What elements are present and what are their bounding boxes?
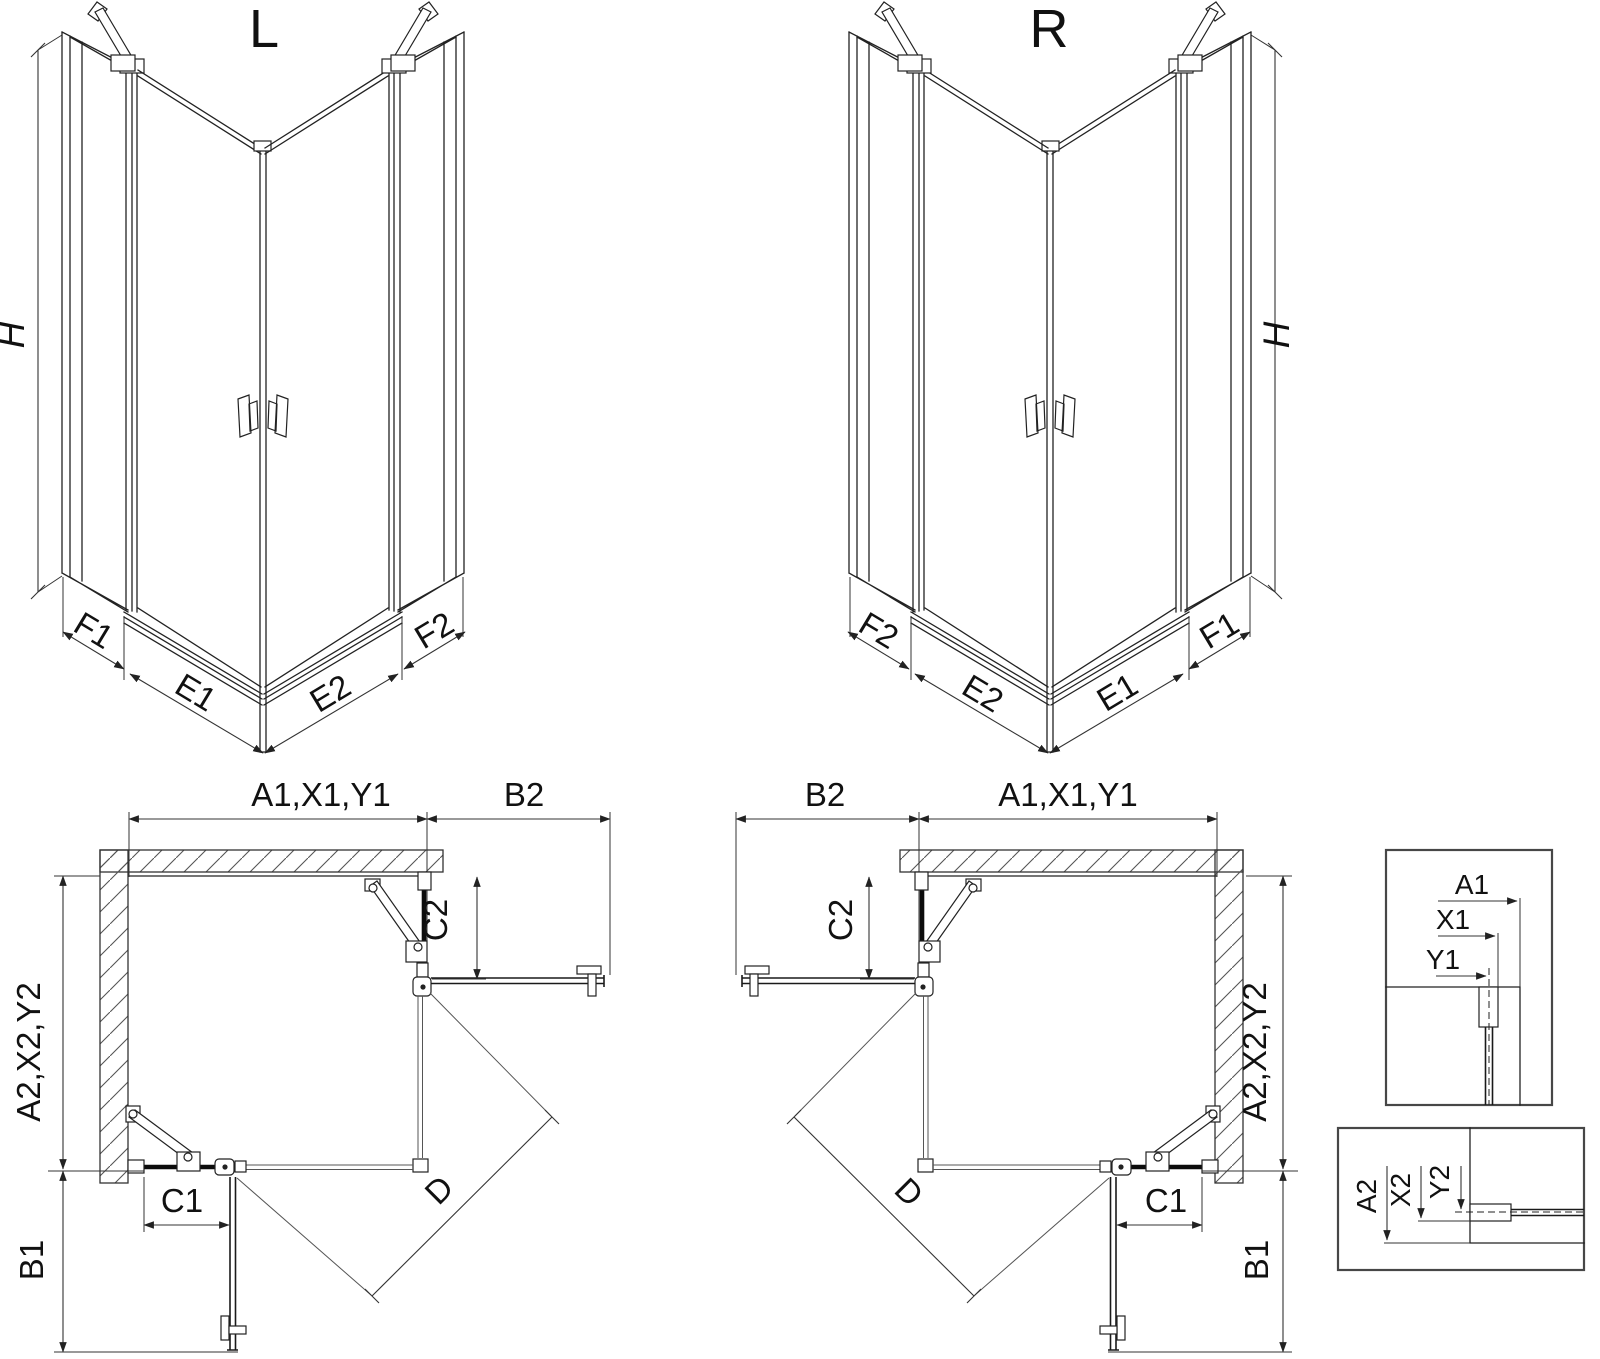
plan-right-dim-b2: B2	[805, 776, 845, 813]
plan-left-dim-c2: C2	[417, 899, 454, 941]
plan-left-dim-b2: B2	[504, 776, 544, 813]
detail-view-bottom: A2 X2 Y2	[1338, 1128, 1584, 1270]
plan-right-dim-c1: C1	[1145, 1182, 1187, 1219]
iso-right-title: R	[1030, 0, 1069, 59]
detail-top-label-a1: A1	[1455, 869, 1489, 900]
plan-right-dim-c2: C2	[822, 899, 859, 941]
wall-top-right-plan	[900, 850, 1243, 872]
detail-bottom-label-y2: Y2	[1424, 1165, 1455, 1199]
wall-top-left-plan	[100, 850, 443, 872]
iso-left-dim-h: H	[0, 321, 32, 348]
plan-right-dim-b1: B1	[1238, 1240, 1275, 1280]
iso-right-dim-f1: F1	[1193, 604, 1245, 656]
shower-enclosure-technical-drawing: L H F1 E1 E2 F2 R H F2 E2 E1 F1 A1,X1,Y1…	[0, 0, 1600, 1359]
detail-bottom-label-x2: X2	[1385, 1173, 1416, 1207]
iso-right-dim-h: H	[1256, 321, 1297, 348]
iso-left-dim-f2: F2	[408, 604, 460, 656]
iso-view-left: L H F1 E1 E2 F2	[0, 0, 465, 753]
plan-view-right: A1,X1,Y1 B2 C2 A2,X2,Y2 C1 B1 D	[736, 776, 1298, 1352]
plan-left-dim-d: D	[417, 1168, 460, 1211]
iso-left-dim-e2: E2	[303, 667, 357, 720]
plan-left-dim-b1: B1	[13, 1240, 50, 1280]
detail-top-label-y1: Y1	[1426, 944, 1460, 975]
iso-right-dim-e1: E1	[1090, 666, 1144, 719]
plan-left-dim-c1: C1	[161, 1182, 203, 1219]
plan-left-dim-a2x2y2: A2,X2,Y2	[10, 982, 47, 1121]
detail-view-top: A1 X1 Y1	[1386, 850, 1552, 1105]
iso-left-dim-f1: F1	[68, 604, 120, 656]
iso-left-title: L	[249, 0, 279, 59]
plan-right-dim-a2x2y2: A2,X2,Y2	[1236, 982, 1273, 1121]
detail-top-label-x1: X1	[1436, 904, 1470, 935]
iso-left-dim-e1: E1	[169, 666, 223, 719]
iso-right-dim-f2: F2	[853, 604, 905, 656]
iso-view-right: R H F2 E2 E1 F1	[848, 0, 1297, 753]
detail-bottom-label-a2: A2	[1351, 1179, 1382, 1213]
plan-right-dim-a1x1y1: A1,X1,Y1	[998, 776, 1137, 813]
technical-drawing-page: L H F1 E1 E2 F2 R H F2 E2 E1 F1 A1,X1,Y1…	[0, 0, 1600, 1359]
iso-right-dim-e2: E2	[956, 667, 1010, 720]
wall-side-left-plan	[100, 850, 128, 1183]
plan-view-left: A1,X1,Y1 B2 C2 A2,X2,Y2 C1 B1 D	[10, 776, 610, 1352]
plan-left-dim-a1x1y1: A1,X1,Y1	[251, 776, 390, 813]
plan-right-dim-d: D	[888, 1170, 931, 1213]
